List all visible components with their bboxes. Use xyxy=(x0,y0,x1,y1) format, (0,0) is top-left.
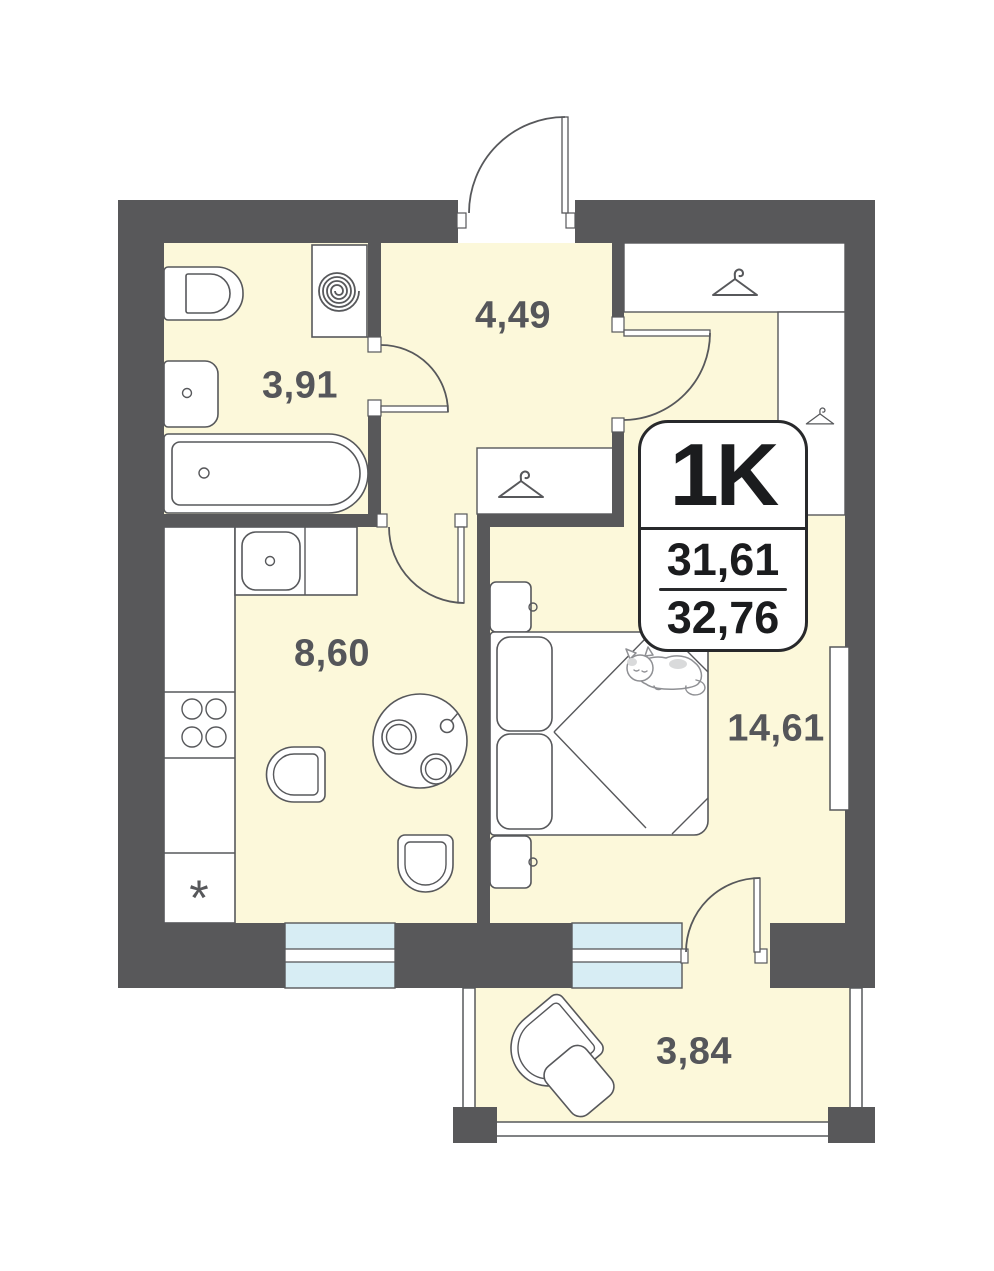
bathroom-wall-lower xyxy=(368,416,381,514)
door-hinge xyxy=(368,337,381,352)
hallway-area-label: 4,49 xyxy=(475,295,551,338)
door-hinge xyxy=(368,400,381,416)
kitchen-bedroom-wall xyxy=(477,514,490,923)
balcony-wall-left xyxy=(463,988,475,1125)
entrance-door-leaf xyxy=(562,117,568,213)
door-hinge xyxy=(612,317,624,332)
wall-bottom-2 xyxy=(395,923,572,988)
wall-left xyxy=(118,200,164,988)
bathroom-wall-upper xyxy=(368,243,381,337)
unit-type-label: 1K xyxy=(641,423,805,530)
kitchen-sink xyxy=(242,532,300,590)
balcony-corner-block-left xyxy=(453,1107,497,1143)
balcony-area-label: 3,84 xyxy=(656,1031,732,1074)
wall-top-right xyxy=(575,200,875,243)
door-hinge xyxy=(681,949,688,963)
living-area-value: 31,61 xyxy=(667,536,780,585)
floor-plan-drawing: * xyxy=(0,0,994,1271)
floor-plan-canvas: * xyxy=(0,0,994,1271)
kitchen-door-leaf xyxy=(458,527,464,603)
wall-top-left xyxy=(118,200,458,243)
pillow xyxy=(497,637,552,731)
pillow xyxy=(497,734,552,829)
bathroom-kitchen-wall xyxy=(164,514,377,527)
total-area-value: 32,76 xyxy=(667,594,780,643)
wall-bottom-1 xyxy=(118,923,285,988)
hall-closet xyxy=(477,448,618,514)
kitchen-counter-column xyxy=(164,527,235,923)
balcony-corner-block-right xyxy=(828,1107,875,1143)
bedroom-wall-upper xyxy=(612,243,624,317)
door-hinge xyxy=(612,418,624,432)
bedroom-area-label: 14,61 xyxy=(727,708,825,751)
radiator xyxy=(830,647,849,810)
door-hinge xyxy=(455,514,467,527)
balcony-wall-right xyxy=(850,988,862,1125)
nightstand-top xyxy=(490,582,531,632)
closet-bottom-wall xyxy=(477,514,624,527)
kitchen-area-label: 8,60 xyxy=(294,633,370,676)
bathroom-door-leaf xyxy=(381,406,448,412)
unit-areas: 31,61 32,76 xyxy=(641,530,805,649)
bedroom-window-frame xyxy=(572,949,682,962)
door-hinge xyxy=(377,514,387,527)
balcony-door-leaf xyxy=(754,878,760,952)
toilet-bowl xyxy=(186,274,230,313)
entrance-door-arc xyxy=(469,117,565,213)
cup xyxy=(441,720,454,733)
wall-right xyxy=(845,200,875,988)
kitchen-window-frame xyxy=(285,949,395,962)
door-hinge xyxy=(566,213,575,228)
fridge-symbol: * xyxy=(189,870,208,926)
unit-badge: 1K 31,61 32,76 xyxy=(638,420,808,652)
balcony-wall-bottom xyxy=(463,1122,862,1136)
bathtub-inner xyxy=(172,442,360,505)
bathroom-area-label: 3,91 xyxy=(262,365,338,408)
bedroom-door-leaf xyxy=(624,330,710,336)
bedroom-wall-lower xyxy=(612,432,624,527)
nightstand-bottom xyxy=(490,836,531,888)
wall-bottom-3 xyxy=(770,923,875,988)
area-fraction-line xyxy=(659,588,787,592)
door-hinge xyxy=(457,213,466,228)
